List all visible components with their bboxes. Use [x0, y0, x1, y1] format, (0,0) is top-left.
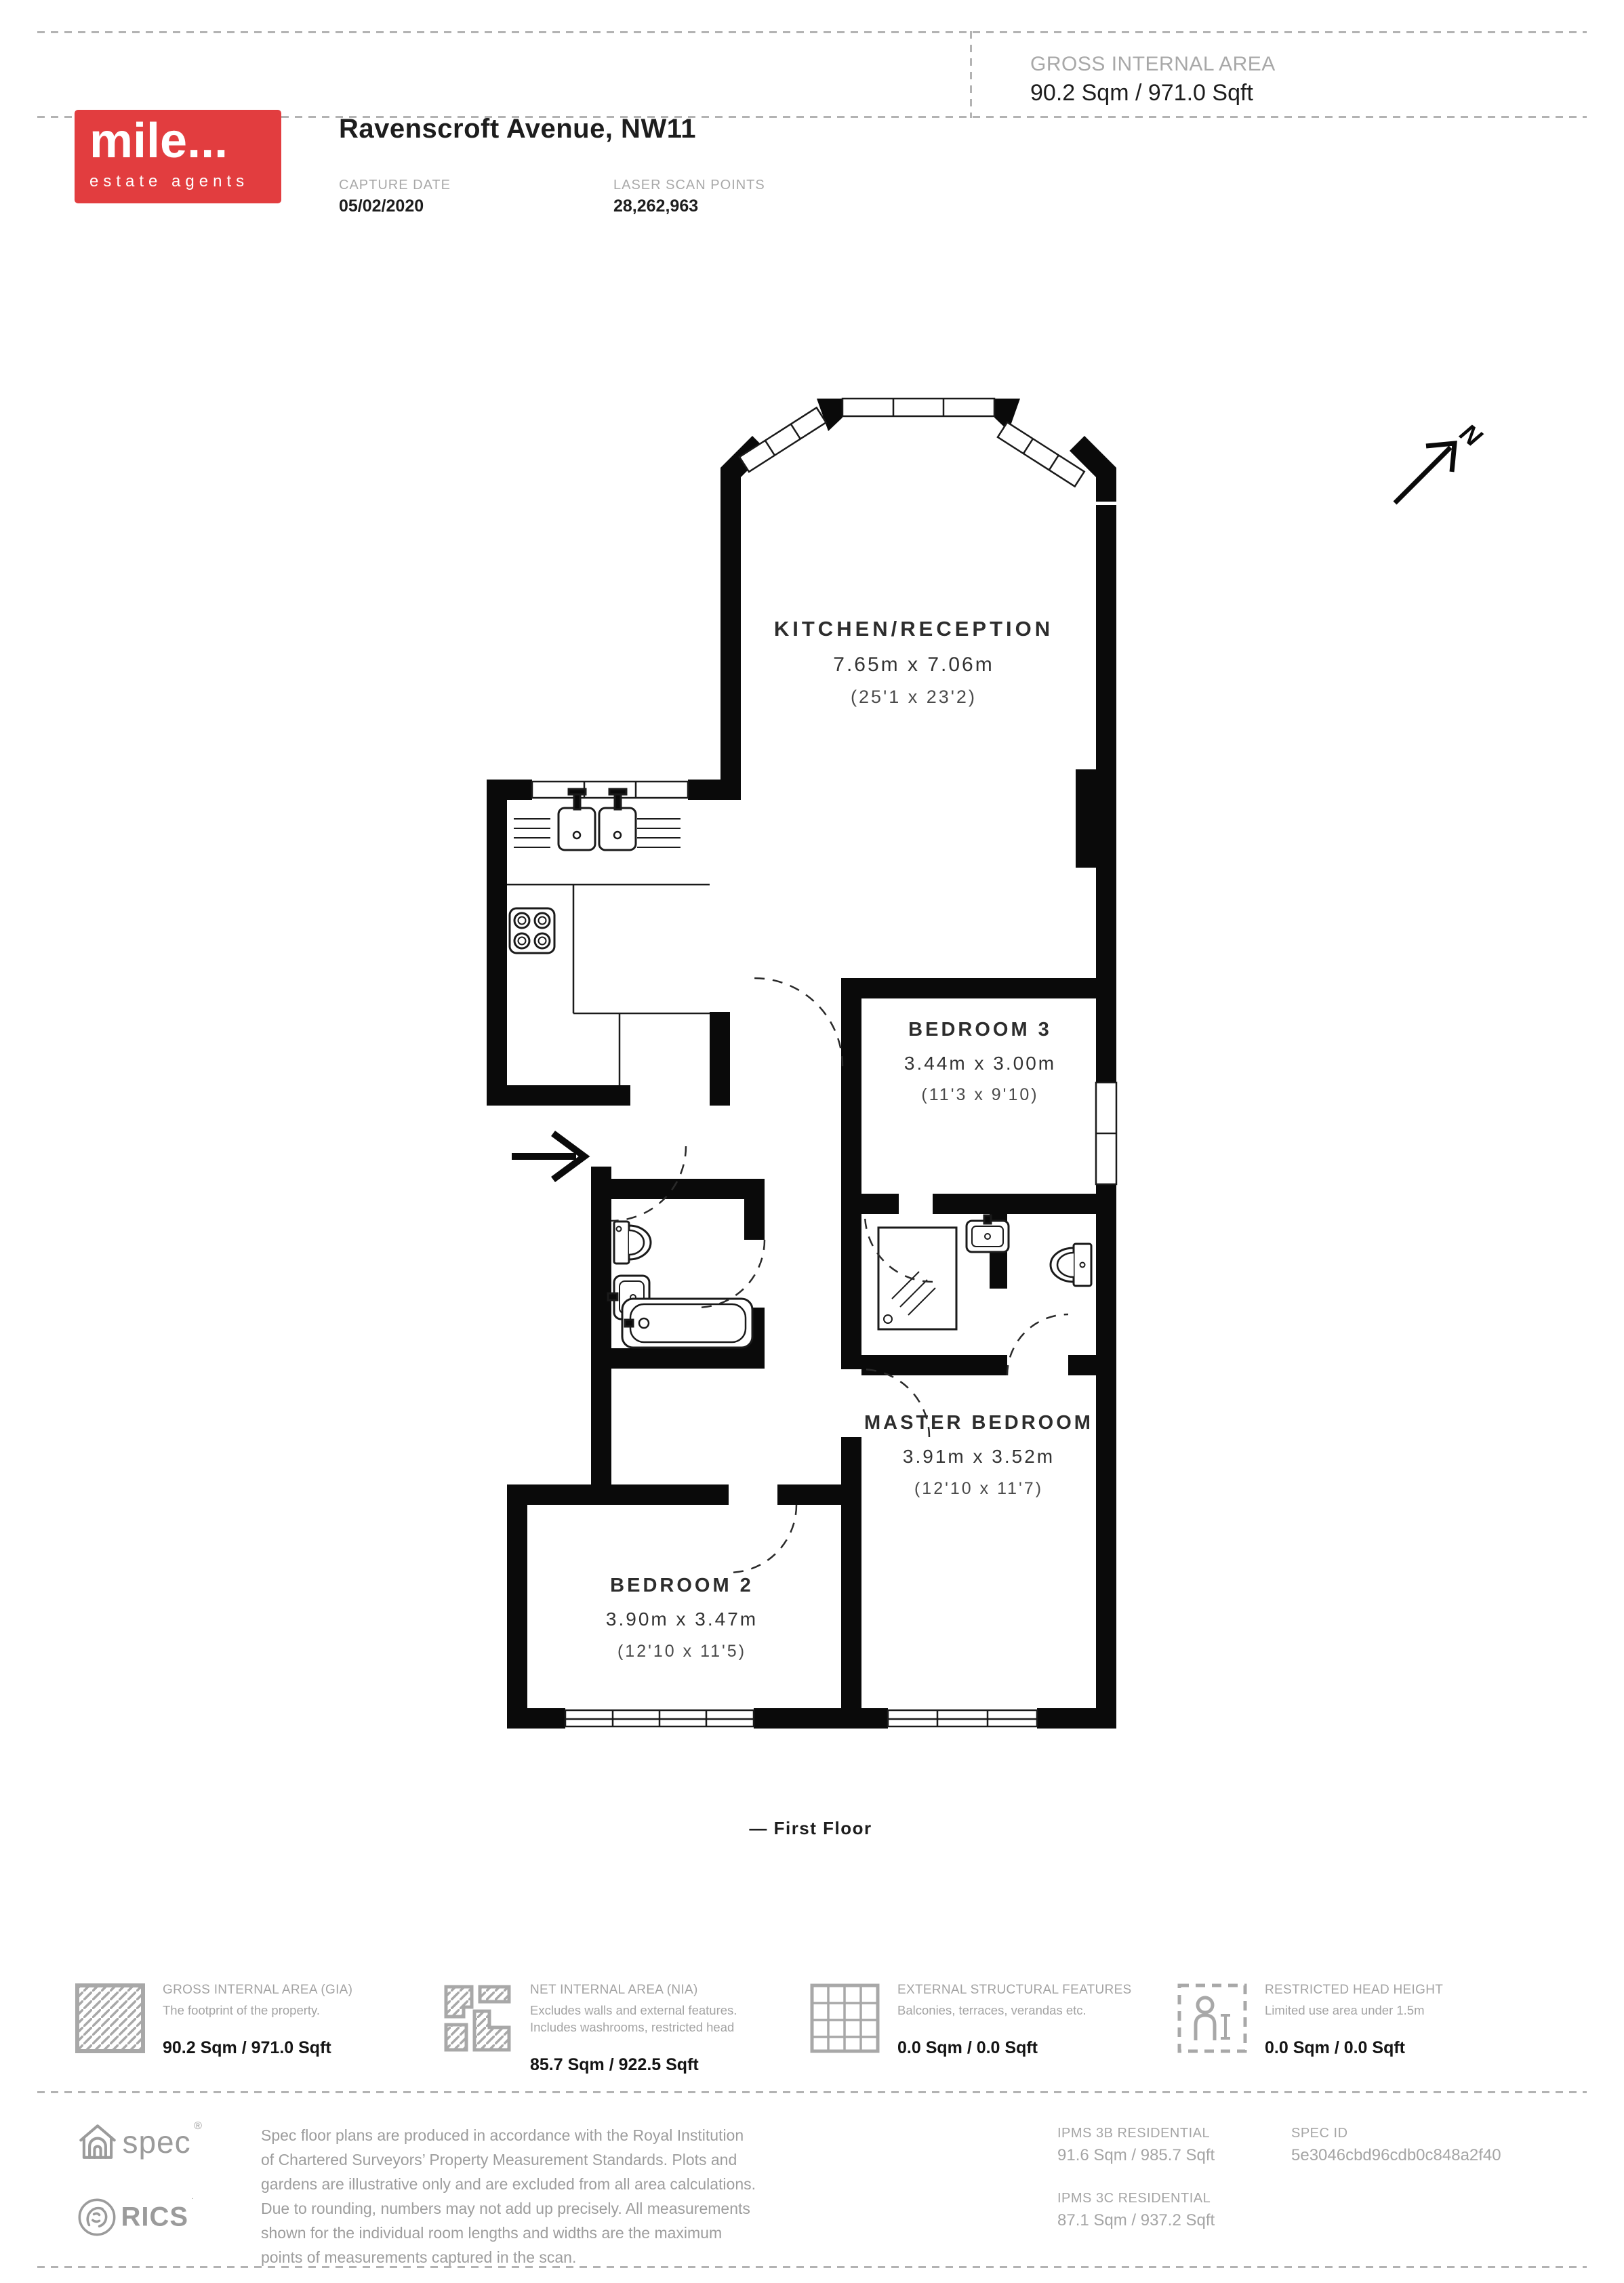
capture-date-label: CAPTURE DATE — [339, 178, 451, 193]
entry-arrow-icon — [512, 1133, 584, 1179]
bedroom3-room-metric: 3.44m x 3.00m — [904, 1053, 1056, 1074]
legend-rhh-title: RESTRICTED HEAD HEIGHT — [1265, 1983, 1443, 1998]
kitchen-room-imperial: (25'1 x 23'2) — [851, 687, 977, 707]
gross-internal-area-value: 90.2 Sqm / 971.0 Sqft — [1030, 80, 1253, 106]
ipms3c-label: IPMS 3C RESIDENTIAL — [1057, 2191, 1211, 2206]
legend-rhh-value: 0.0 Sqm / 0.0 Sqft — [1265, 2038, 1405, 2058]
spec-logo-reg-mark: ® — [194, 2120, 202, 2132]
header-vertical-divider — [970, 31, 972, 118]
bedroom3-window — [1096, 1083, 1116, 1184]
gross-internal-area-label: GROSS INTERNAL AREA — [1030, 53, 1276, 76]
master-room-imperial: (12'10 x 11'7) — [914, 1479, 1043, 1498]
rics-lion-icon — [76, 2196, 118, 2238]
bedroom3-room-name: BEDROOM 3 — [908, 1019, 1052, 1041]
spec-id-value: 5e3046cbd96cdb0c848a2f40 — [1291, 2146, 1501, 2165]
legend-rhh: RESTRICTED HEAD HEIGHT Limited use area … — [1177, 1983, 1519, 2098]
kitchen-room-name: KITCHEN/RECEPTION — [774, 617, 1053, 641]
person-height-icon — [1177, 1983, 1248, 2054]
legend-gia-title: GROSS INTERNAL AREA (GIA) — [163, 1983, 352, 1998]
ipms3b-label: IPMS 3B RESIDENTIAL — [1057, 2126, 1210, 2141]
agency-logo: mile... estate agents — [75, 110, 281, 203]
sink-drainer-lines — [514, 819, 681, 847]
kitchen-room-metric: 7.65m x 7.06m — [833, 653, 994, 676]
legend-gia-desc: The footprint of the property. — [163, 2002, 407, 2019]
spec-id-label: SPEC ID — [1291, 2126, 1348, 2141]
laser-scan-points-value: 28,262,963 — [613, 197, 698, 216]
laser-scan-points-label: LASER SCAN POINTS — [613, 178, 765, 193]
ensuite-shower — [878, 1228, 956, 1329]
spec-house-icon — [76, 2120, 119, 2164]
agency-logo-tagline: estate agents — [89, 172, 266, 191]
ipms3c-value: 87.1 Sqm / 937.2 Sqft — [1057, 2211, 1215, 2230]
ensuite-toilet — [1051, 1244, 1091, 1286]
ipms3b-value: 91.6 Sqm / 985.7 Sqft — [1057, 2146, 1215, 2165]
master-room-metric: 3.91m x 3.52m — [903, 1446, 1055, 1467]
master-room-name: MASTER BEDROOM — [864, 1412, 1093, 1434]
legend-gia: GROSS INTERNAL AREA (GIA) The footprint … — [75, 1983, 417, 2098]
master-window — [888, 1710, 1037, 1726]
spec-logo-text: spec — [122, 2124, 190, 2160]
legend-esf-title: EXTERNAL STRUCTURAL FEATURES — [897, 1983, 1132, 1998]
legend-nia-desc: Excludes walls and external features. In… — [530, 2002, 774, 2036]
bay-window — [739, 399, 1084, 487]
kitchen-hob — [510, 908, 554, 953]
rics-logo-text: RICS — [121, 2202, 188, 2232]
spec-logo: spec ® — [76, 2120, 211, 2164]
rics-logo-reg-mark: ˙ — [191, 2196, 195, 2207]
legend-esf-value: 0.0 Sqm / 0.0 Sqft — [897, 2038, 1038, 2058]
bathroom-toilet — [614, 1221, 651, 1264]
footer-dashed-line — [37, 2091, 1587, 2093]
legend-nia-title: NET INTERNAL AREA (NIA) — [530, 1983, 698, 1998]
floor-caption: — First Floor — [749, 1818, 872, 1838]
hatched-plan-icon — [442, 1983, 513, 2054]
capture-date-value: 05/02/2020 — [339, 197, 424, 216]
header-top-dashed-line — [37, 31, 1587, 33]
legend-esf: EXTERNAL STRUCTURAL FEATURES Balconies, … — [809, 1983, 1152, 2098]
bedroom2-room-name: BEDROOM 2 — [610, 1575, 754, 1596]
legend-gia-value: 90.2 Sqm / 971.0 Sqft — [163, 2038, 331, 2058]
bathtub — [622, 1299, 752, 1348]
disclaimer-text: Spec floor plans are produced in accorda… — [261, 2123, 756, 2269]
grid-icon — [809, 1983, 880, 2054]
north-arrow-icon — [1395, 443, 1455, 503]
floorplan-drawing: N KITCHEN/RECEPTION 7.65m x 7.06m (25'1 … — [474, 380, 1491, 1844]
agency-logo-brand: mile... — [89, 119, 266, 163]
legend-esf-desc: Balconies, terraces, verandas etc. — [897, 2002, 1141, 2019]
rics-logo: RICS ˙ — [76, 2196, 225, 2244]
floorplan-page: { "header": { "logo": { "brand": "mile..… — [0, 0, 1624, 2283]
hatched-square-icon — [75, 1983, 146, 2054]
bedroom2-room-metric: 3.90m x 3.47m — [606, 1609, 758, 1630]
bottom-dashed-line — [37, 2266, 1587, 2268]
bedroom2-room-imperial: (12'10 x 11'5) — [617, 1642, 746, 1661]
north-arrow-label: N — [1455, 419, 1488, 453]
page-title: Ravenscroft Avenue, NW11 — [339, 114, 696, 144]
legend-nia: NET INTERNAL AREA (NIA) Excludes walls a… — [442, 1983, 784, 2098]
bedroom2-window — [565, 1710, 754, 1726]
ensuite-basin — [967, 1215, 1009, 1252]
legend-nia-value: 85.7 Sqm / 922.5 Sqft — [530, 2055, 699, 2075]
legend-rhh-desc: Limited use area under 1.5m — [1265, 2002, 1509, 2019]
bedroom3-room-imperial: (11'3 x 9'10) — [921, 1085, 1038, 1104]
